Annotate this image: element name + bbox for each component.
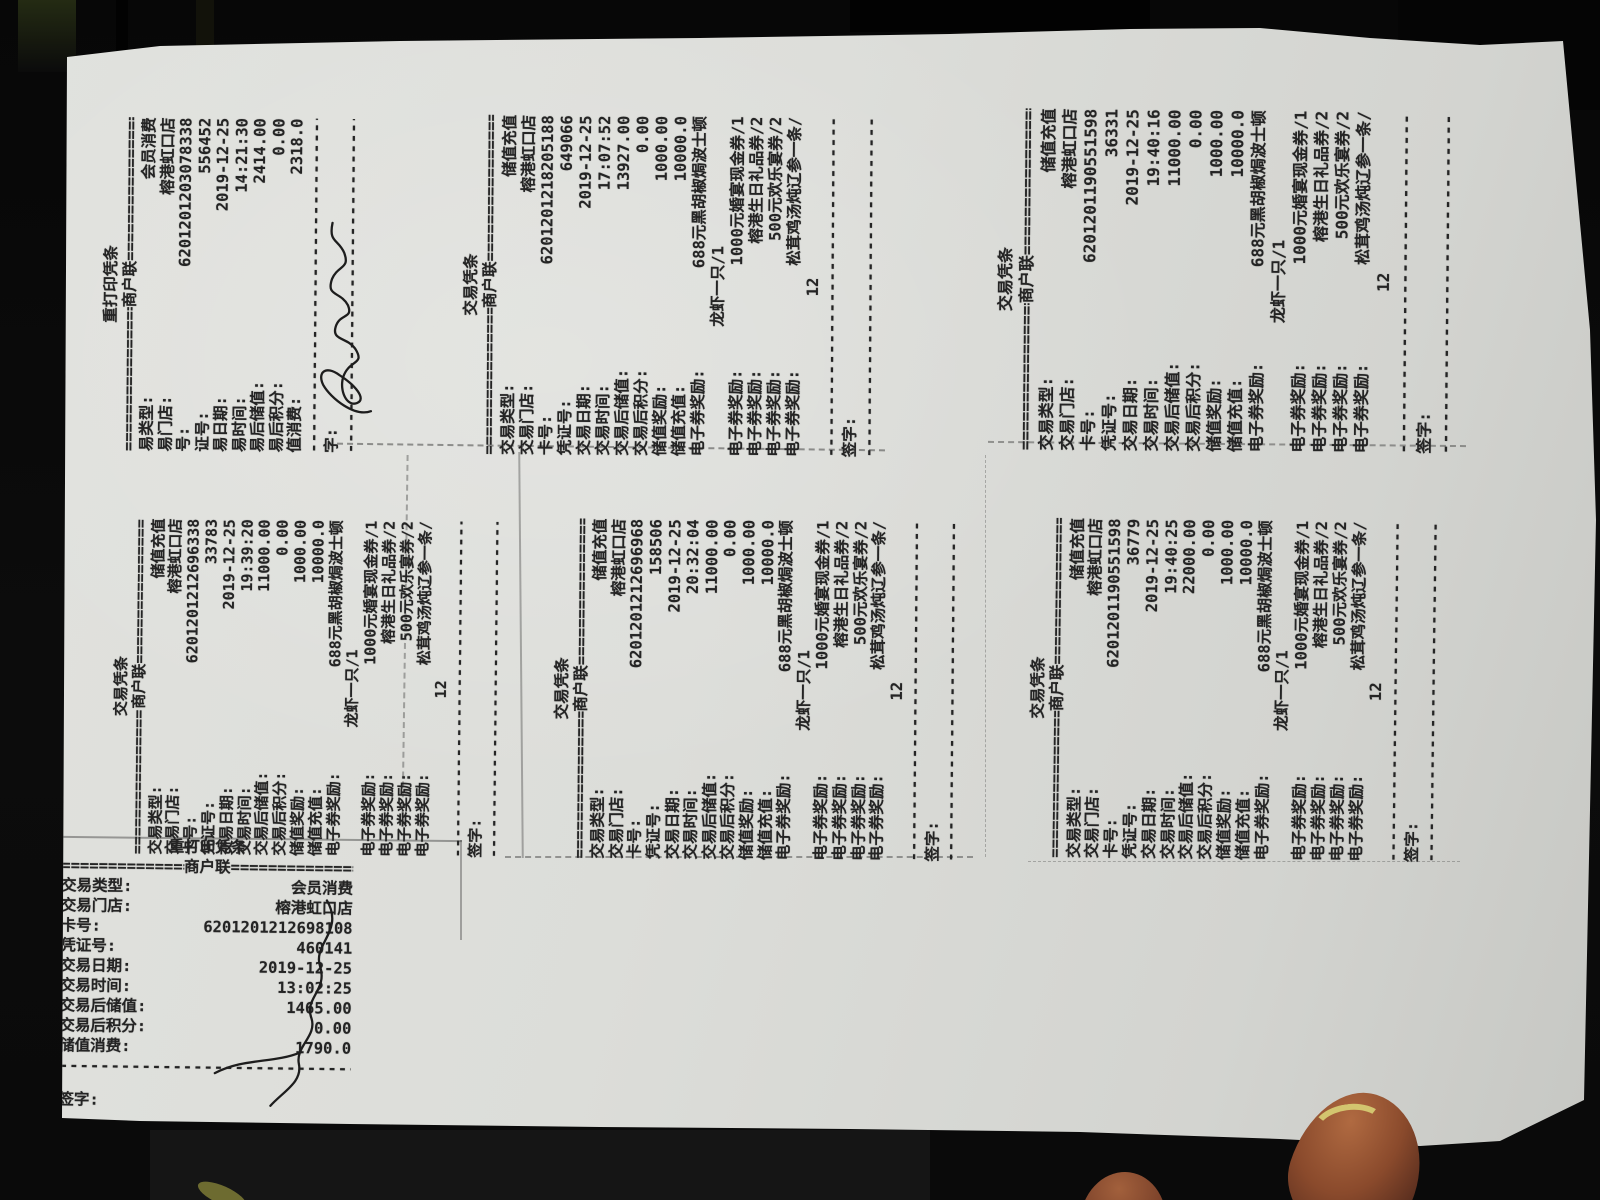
background-shadow-band <box>850 0 1150 32</box>
row-label: 易时间: <box>230 396 249 452</box>
row-label: 交易后积分: <box>632 369 652 456</box>
coupon-label: 电子券奖励: <box>1351 363 1373 453</box>
row-value: 36331 <box>1101 109 1122 157</box>
coupon-value: 榕港生日礼品券/2 <box>747 117 767 244</box>
separator-line: ----------------------------------------… <box>449 521 470 857</box>
row-value: 556452 <box>195 118 214 174</box>
coupon-continuation: 龙虾一只/1 <box>708 116 729 456</box>
row-label: 交易日期: <box>1120 377 1142 451</box>
receipt-row: 交易日期:2019-12-25 <box>575 115 596 455</box>
row-label: 卡号: <box>1078 409 1099 451</box>
coupon-value: 松茸鸡汤炖辽参一条/ <box>416 521 435 665</box>
receipt-row: 交易门店:榕港虹口店 <box>1057 109 1081 451</box>
paper-sheet: 重打印凭条================商户联================… <box>0 0 1600 1200</box>
band-dashes: ================ <box>131 518 150 664</box>
receipt-recharge-649066: 交易凭条================商户联================交… <box>461 115 883 458</box>
band-dashes: ================ <box>481 115 501 262</box>
row-label: 易日期: <box>212 396 231 452</box>
band-label: 商户联 <box>131 664 149 709</box>
signature-label: 签字: <box>841 417 860 457</box>
row-value: 1000.00 <box>1206 110 1228 178</box>
coupon-row: 电子券奖励:1000元婚宴现金券/1 <box>1288 111 1312 453</box>
row-value: 榕港虹口店 <box>167 519 186 594</box>
row-value: 0.00 <box>722 520 741 557</box>
coupon-value: 688元黑胡椒焗波士顿 <box>327 520 346 667</box>
row-value: 10000.0 <box>672 116 691 181</box>
separator-line: ----------------------------------------… <box>1422 522 1445 862</box>
row-label: 交易时间: <box>682 788 701 860</box>
coupon-label: 电子券奖励: <box>868 774 887 861</box>
signature-label: 签字: <box>1403 822 1422 863</box>
band-label: 商户联 <box>120 261 139 308</box>
receipt-row: 储值充值:10000.0 <box>670 116 691 456</box>
receipt-row: 储值充值:10000.0 <box>1225 110 1249 452</box>
receipt-row: 凭证号:36331 <box>1099 109 1123 451</box>
receipt-row: 交易后积分:0.00 <box>632 116 653 456</box>
row-label: 交易后积分: <box>1196 773 1216 860</box>
separator-line: ----------------------------------------… <box>822 117 843 457</box>
row-value: 2019-12-25 <box>1122 109 1144 206</box>
receipt-row: 交易后储值:11000.00 <box>1162 109 1186 451</box>
row-label: 交易后储值: <box>613 369 633 456</box>
row-label: 交易日期: <box>60 955 132 976</box>
row-value: 6201201218205188 <box>538 115 558 264</box>
merchant-copy-band: ================商户联================ <box>480 115 501 455</box>
row-label: 储值奖励: <box>1204 378 1226 452</box>
coupon-value: 松茸鸡汤炖辽参一条/ <box>785 117 805 266</box>
coupon-continuation: 龙虾一只/1 <box>1267 110 1291 452</box>
coupon-label: 电子券奖励: <box>812 774 831 861</box>
coupon-label: 电子券奖励: <box>396 773 415 857</box>
signature-row: 签字: <box>1414 112 1438 454</box>
row-label: 交易后积分: <box>719 773 738 860</box>
row-label: 凭证号: <box>1121 803 1140 859</box>
coupon-value: 松茸鸡汤炖辽参一条/ <box>1349 521 1370 670</box>
coupon-value: 松茸鸡汤炖辽参一条/ <box>869 521 889 670</box>
band-dashes: ================ <box>480 308 500 455</box>
row-value: 19:40:16 <box>1143 109 1165 186</box>
row-value: 11000.00 <box>703 520 722 595</box>
background-light-patch <box>150 1130 930 1200</box>
coupon-row: 电子券奖励:松茸鸡汤炖辽参一条/ <box>868 521 890 861</box>
signature-label: 签字: <box>923 821 942 862</box>
row-label: 交易门店: <box>1083 787 1103 859</box>
band-label: 商户联 <box>184 857 231 878</box>
row-value: 6201201203078338 <box>176 118 196 267</box>
receipt-recharge-158506: 交易凭条================商户联================交… <box>552 518 967 862</box>
row-label: 易类型: <box>138 395 157 451</box>
row-value: 榕港虹口店 <box>610 519 629 597</box>
row-value: 0.00 <box>634 116 653 153</box>
coupon-row: 电子券奖励:松茸鸡汤炖辽参一条/ <box>784 117 805 457</box>
receipt-row: 卡号:6201201218205188 <box>537 115 558 455</box>
receipt-slip-reprint-460141: 重打印凭条================商户联================… <box>58 835 358 1120</box>
coupon-label: 电子券奖励: <box>1252 773 1272 860</box>
row-value: 2318.0 <box>288 118 307 174</box>
row-label: 储值奖励: <box>737 788 756 860</box>
row-label: 交易类型: <box>61 875 133 896</box>
receipt-slip-recharge-36331: 交易凭条================商户联================交… <box>993 110 1463 452</box>
row-value: 6201201212696338 <box>184 519 203 664</box>
band-label: 商户联 <box>1048 664 1067 711</box>
row-label: 交易类型: <box>1065 787 1085 859</box>
band-dashes: ================ <box>230 857 353 878</box>
coupon-label: 电子券奖励: <box>849 774 868 861</box>
receipt-title: 交易凭条 <box>994 108 1018 450</box>
coupon-label: 电子券奖励: <box>1288 363 1310 453</box>
coupon-value: 1000元婚宴现金券/1 <box>813 520 833 669</box>
signature-label: 字: <box>323 428 342 453</box>
row-label: 交易类型: <box>589 787 608 859</box>
band-dashes: ================ <box>119 307 139 451</box>
row-value: 储值充值 <box>591 519 610 581</box>
coupon-row: 电子券奖励:榕港生日礼品券/2 <box>1309 111 1333 453</box>
row-value: 19:40:25 <box>1162 519 1182 594</box>
receipt-recharge-36331: 交易凭条================商户联================交… <box>994 108 1463 454</box>
coupon-value: 500元欢乐宴券/2 <box>851 521 871 645</box>
row-label: 交易门店: <box>518 384 537 455</box>
row-label: 卡号: <box>537 415 556 455</box>
row-label: 易后储值: <box>249 381 268 453</box>
receipt-row: 交易后储值:13927.00 <box>613 116 634 456</box>
coupon-label: 电子券奖励: <box>1246 363 1268 453</box>
row-label: 交易后积分: <box>59 1015 146 1036</box>
row-value: 10000.0 <box>310 520 328 583</box>
receipt-row: 交易门店:榕港虹口店 <box>607 519 629 859</box>
row-label: 交易后储值: <box>1177 772 1197 859</box>
coupon-value: 688元黑胡椒焗波士顿 <box>1247 110 1269 267</box>
receipt-slip-recharge-33783: 交易凭条================商户联================交… <box>112 520 506 856</box>
receipt-slip-recharge-158506: 交易凭条================商户联================交… <box>553 520 965 860</box>
receipt-row: 储值奖励:1000.00 <box>651 116 672 456</box>
row-value: 33783 <box>203 519 221 564</box>
row-value: 14:21:30 <box>232 118 251 193</box>
index-fingertip <box>1077 1166 1172 1200</box>
signature-scribble <box>208 895 351 1123</box>
band-dashes: ================ <box>1046 711 1067 858</box>
row-value: 17:07:52 <box>596 115 616 190</box>
coupon-value: 榕港生日礼品券/2 <box>380 521 399 644</box>
coupon-label: 电子券奖励: <box>1330 363 1352 453</box>
coupon-label: 电子券奖励: <box>689 369 709 456</box>
coupon-value: 榕港生日礼品券/2 <box>1310 111 1332 242</box>
receipt-row: 交易门店:榕港虹口店 <box>518 115 539 455</box>
coupon-label: 电子券奖励: <box>784 370 804 457</box>
coupon-value: 500元欢乐宴券/2 <box>398 521 417 641</box>
row-label: 值消费: <box>286 397 305 453</box>
row-label: 交易日期: <box>1140 787 1160 859</box>
row-value: 1000.00 <box>1218 520 1238 586</box>
coupon-row: 电子券奖励:榕港生日礼品券/2 <box>746 117 767 457</box>
signature-row: 签字: <box>841 117 862 457</box>
row-label: 交易时间: <box>594 384 613 455</box>
row-label: 储值奖励: <box>1215 788 1235 860</box>
separator-line: ----------------------------------------… <box>485 522 506 858</box>
separator-line: ----------------------------------------… <box>1393 111 1417 453</box>
row-label: 卡号: <box>626 819 645 860</box>
receipt-row: 储值奖励:1000.00 <box>1204 110 1228 452</box>
row-value: 2019-12-25 <box>214 118 233 211</box>
signature-label: 签字: <box>58 1089 99 1109</box>
separator-line: ----------------------------------------… <box>905 521 927 861</box>
band-dashes: ================ <box>570 712 590 859</box>
row-value: 10000.0 <box>1237 520 1257 586</box>
row-value: 649066 <box>558 115 577 171</box>
row-label: 储值充值: <box>1225 378 1247 452</box>
signature-scribble <box>315 209 379 420</box>
coupon-row: 电子券奖励:500元欢乐宴券/2 <box>1330 111 1354 453</box>
coupon-label: 电子券奖励: <box>1328 774 1348 861</box>
row-label: 交易类型: <box>1036 377 1058 451</box>
receipt-row: 交易类型:储值充值 <box>499 115 520 455</box>
receipt-row: 易门店:榕港虹口店 <box>156 117 177 451</box>
band-label: 商户联 <box>1016 255 1037 303</box>
row-label: 交易后储值: <box>700 773 719 860</box>
row-value: 2414.00 <box>251 118 270 183</box>
row-value: 榕港虹口店 <box>1059 109 1081 189</box>
coupon-row: 电子券奖励:688元黑胡椒焗波士顿 <box>775 520 797 860</box>
photo: 重打印凭条================商户联================… <box>0 0 1600 1200</box>
receipt-reprint-460141: 重打印凭条================商户联================… <box>58 835 353 1115</box>
row-label: 交易日期: <box>663 788 682 860</box>
coupon-label: 电子券奖励: <box>775 773 794 860</box>
row-label: 凭证号: <box>1099 393 1121 451</box>
coupon-label: 电子券奖励: <box>414 773 433 857</box>
row-value: 20:32:04 <box>684 519 703 594</box>
band-dashes: ================ <box>1048 518 1069 665</box>
coupon-label: 电子券奖励: <box>765 370 785 457</box>
row-value: 11000.00 <box>256 519 275 591</box>
row-value: 19:39:20 <box>239 519 258 591</box>
coupon-continuation: 12 <box>1372 111 1396 453</box>
coupon-value: 松茸鸡汤炖辽参一条/ <box>1352 111 1374 265</box>
coupon-continuation: 12 <box>803 117 824 457</box>
coupon-row: 电子券奖励:松茸鸡汤炖辽参一条/ <box>1351 111 1375 453</box>
receipt-slip-recharge-36779: 交易凭条================商户联================交… <box>1028 520 1446 860</box>
coupon-label: 电子券奖励: <box>1309 363 1331 453</box>
row-label: 凭证号: <box>60 935 116 956</box>
row-value: 11000.00 <box>1164 109 1186 186</box>
coupon-label: 电子券奖励: <box>830 774 849 861</box>
row-value: 6201201212696968 <box>628 519 648 668</box>
coupon-row: 电子券奖励:1000元婚宴现金券/1 <box>727 116 748 456</box>
coupon-value: 500元欢乐宴券/2 <box>766 117 786 241</box>
row-value: 1000.00 <box>740 520 759 585</box>
row-value: 会员消费 <box>140 117 159 179</box>
row-label: 交易后积分: <box>1183 362 1205 452</box>
row-value: 榕港虹口店 <box>520 115 540 193</box>
row-label: 交易时间: <box>1159 788 1179 860</box>
row-label: 交易门店: <box>607 787 626 859</box>
row-label: 号: <box>175 427 194 452</box>
band-label: 商户联 <box>481 261 500 308</box>
coupon-label: 电子券奖励: <box>727 370 747 457</box>
row-value: 1000.00 <box>653 116 672 181</box>
merchant-copy-band: ================商户联================ <box>1015 108 1039 450</box>
receipt-row: 交易门店:榕港虹口店 <box>165 519 186 855</box>
row-label: 交易时间: <box>1141 378 1163 452</box>
separator-line: ----------------------------------------… <box>942 522 964 862</box>
coupon-value: 1000元婚宴现金券/1 <box>728 116 748 265</box>
row-label: 凭证号: <box>644 803 663 859</box>
coupon-label: 电子券奖励: <box>746 370 766 457</box>
row-label: 交易时间: <box>60 975 132 996</box>
row-value: 榕港虹口店 <box>158 117 177 195</box>
receipt-title: 交易凭条 <box>461 115 482 455</box>
row-value: 榕港虹口店 <box>1087 518 1107 596</box>
row-label: 卡号: <box>60 915 101 935</box>
coupon-value: 688元黑胡椒焗波士顿 <box>1255 520 1276 672</box>
row-label: 储值充值: <box>1234 789 1254 861</box>
row-value: 储值充值 <box>501 115 520 177</box>
coupon-row: 电子券奖励:688元黑胡椒焗波士顿 <box>1246 110 1270 452</box>
receipt-slip-recharge-649066: 交易凭条================商户联================交… <box>462 116 882 456</box>
row-label: 储值消费: <box>59 1035 131 1056</box>
row-label: 交易日期: <box>575 384 594 455</box>
row-value: 储值充值 <box>1038 108 1060 172</box>
row-label: 储值充值: <box>670 385 689 456</box>
slip-edge-line <box>985 455 986 857</box>
row-value: 36779 <box>1124 519 1143 566</box>
receipt-row: 卡号:6201201190551598 <box>1078 109 1102 451</box>
band-label: 商户联 <box>571 665 590 712</box>
receipt-row: 值消费:2318.0 <box>286 118 307 452</box>
row-label: 凭证号: <box>556 399 575 455</box>
receipt-row: 交易日期:2019-12-25 <box>1120 109 1144 451</box>
coupon-label: 电子券奖励: <box>1290 774 1310 861</box>
coupon-value: 榕港生日礼品券/2 <box>1311 521 1331 648</box>
band-dashes: ================ <box>1016 108 1038 255</box>
row-label: 交易门店: <box>61 895 133 916</box>
coupon-value: 榕港生日礼品券/2 <box>832 521 852 648</box>
signature-label: 签字: <box>1414 412 1435 454</box>
coupon-row: 电子券奖励:688元黑胡椒焗波士顿 <box>689 116 710 456</box>
row-label: 交易门店: <box>1057 377 1079 451</box>
coupon-row: 电子券奖励:500元欢乐宴券/2 <box>765 117 786 457</box>
separator-line: ----------------------------------------… <box>1434 112 1458 454</box>
row-value: 6201201190551598 <box>1079 109 1101 263</box>
row-label: 储值奖励: <box>651 385 670 456</box>
coupon-value: 1000元婚宴现金券/1 <box>1292 521 1313 670</box>
band-dashes: ================ <box>572 518 592 665</box>
coupon-label: 电子券奖励: <box>1309 774 1329 861</box>
row-label: 交易后储值: <box>59 995 146 1016</box>
row-label: 易门店: <box>156 395 175 451</box>
band-dashes: ================ <box>1015 303 1037 450</box>
row-value: 6201201190551598 <box>1104 518 1125 668</box>
receipt-recharge-33783: 交易凭条================商户联================交… <box>111 518 506 858</box>
separator-line: ----------------------------------------… <box>860 117 881 457</box>
row-value: 0.00 <box>1185 110 1206 149</box>
row-label: 交易类型: <box>499 383 518 454</box>
row-label: 证号: <box>193 411 212 452</box>
coupon-value: 1000元婚宴现金券/1 <box>1289 111 1311 265</box>
row-value: 2019-12-25 <box>577 115 597 208</box>
receipt-row: 交易后积分:0.00 <box>1183 110 1207 452</box>
row-value: 储值充值 <box>1068 518 1088 580</box>
row-value: 158506 <box>647 519 666 575</box>
coupon-label: 电子券奖励: <box>360 773 379 857</box>
coupon-value: 500元欢乐宴券/2 <box>1331 111 1353 239</box>
coupon-label: 电子券奖励: <box>1346 775 1366 862</box>
row-value: 10000.0 <box>758 520 777 585</box>
band-dashes: ================ <box>121 117 141 261</box>
row-label: 储值充值: <box>756 789 775 861</box>
row-value: 0.00 <box>1200 520 1219 558</box>
coupon-label: 电子券奖励: <box>378 773 397 857</box>
coupon-value: 500元欢乐宴券/2 <box>1330 521 1350 645</box>
receipt-reprint-556452: 重打印凭条================商户联================… <box>101 117 366 453</box>
receipt-row: 交易时间:19:40:16 <box>1141 109 1165 451</box>
row-value: 0.00 <box>275 520 293 556</box>
row-value: 2019-12-25 <box>221 519 240 609</box>
row-value: 1000.00 <box>292 520 310 583</box>
row-value: 0.00 <box>270 118 289 155</box>
receipt-recharge-36779: 交易凭条================商户联================交… <box>1027 517 1447 862</box>
coupon-value: 688元黑胡椒焗波士顿 <box>690 116 710 268</box>
receipt-row: 凭证号:649066 <box>556 115 577 455</box>
signature-label: 签字: <box>467 819 485 858</box>
row-value: 22000.00 <box>1181 519 1201 594</box>
row-value: 2019-12-25 <box>1143 519 1163 613</box>
receipt-slip-reprint-556452: 重打印凭条================商户联================… <box>102 118 364 452</box>
row-label: 卡号: <box>1102 818 1121 859</box>
row-label: 易后积分: <box>267 381 286 453</box>
band-dashes: ================ <box>61 855 184 876</box>
row-value: 13927.00 <box>615 116 635 191</box>
receipt-row: 交易类型:储值充值 <box>1036 108 1060 450</box>
coupon-value: 688元黑胡椒焗波士顿 <box>776 520 796 672</box>
row-label: 交易后储值: <box>1162 362 1184 452</box>
receipt-row: 交易时间:17:07:52 <box>594 115 615 455</box>
slip-edge-line <box>518 452 524 858</box>
row-value: 2019-12-25 <box>665 519 684 612</box>
row-value: 10000.0 <box>1227 110 1249 178</box>
